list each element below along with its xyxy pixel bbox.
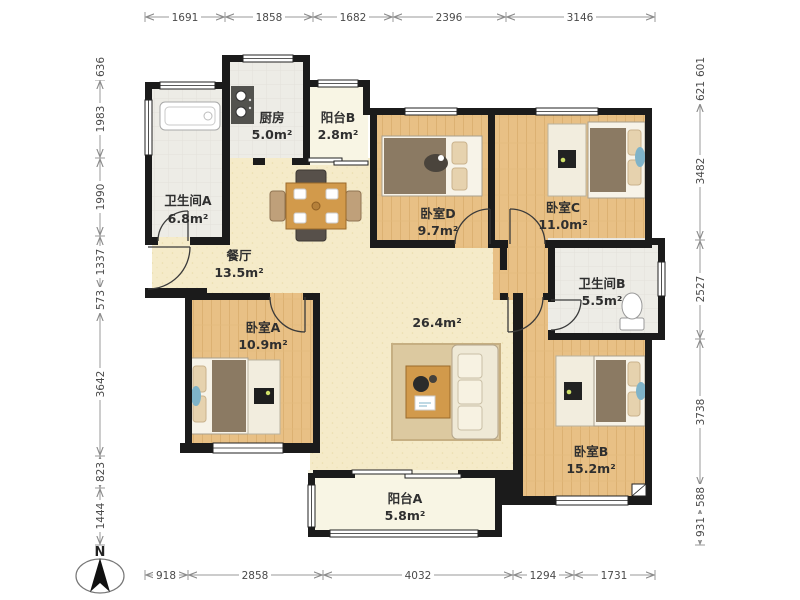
bed-d [382, 136, 482, 196]
living-set [392, 344, 500, 440]
bed-b [556, 356, 646, 426]
dim-left-6: 823 [95, 462, 107, 482]
dim-top-4: 3146 [567, 12, 594, 24]
compass-needle-icon [90, 558, 110, 592]
dim-bottom-1: 2858 [242, 570, 269, 582]
bath-b-area: 5.5m² [582, 293, 623, 308]
bedroom-b-label: 卧室B [574, 444, 609, 459]
balcony-b-area: 2.8m² [318, 127, 359, 142]
bedroom-d-area: 9.7m² [418, 223, 459, 238]
window-bedroom-a-bottom [213, 443, 283, 453]
balcony-a-label: 阳台A [388, 491, 423, 506]
dimensions-bottom: 918 2858 4032 1294 1731 [145, 569, 655, 582]
dim-left-4: 573 [95, 290, 107, 310]
dim-top-0: 1691 [172, 12, 199, 24]
bathtub [160, 102, 220, 130]
bedroom-d-label: 卧室D [420, 206, 455, 221]
floor-plan-page: 厨房 5.0m² 阳台B 2.8m² 卫生间A 6.8m² 餐厅 13.5m² … [0, 0, 800, 600]
dim-right-4: 3738 [695, 399, 707, 426]
dim-bottom-0: 918 [156, 570, 176, 582]
bath-a-area: 6.8m² [168, 211, 209, 226]
window-balcony-a-bottom [330, 530, 478, 537]
living-area: 26.4m² [412, 315, 461, 330]
dim-left-7: 1444 [95, 502, 107, 529]
dining-label: 餐厅 [225, 248, 252, 263]
balcony-a-area: 5.8m² [385, 508, 426, 523]
bedroom-a-area: 10.9m² [238, 337, 287, 352]
bed-c [548, 122, 645, 198]
bedroom-c-area: 11.0m² [538, 217, 587, 232]
dim-left-1: 1983 [95, 106, 107, 133]
dim-left-5: 3642 [95, 371, 107, 398]
window-bedroom-d-top [405, 108, 457, 115]
dim-left-2: 1990 [95, 184, 107, 211]
bedroom-c-label: 卧室C [546, 200, 580, 215]
dim-top-2: 1682 [340, 12, 367, 24]
dim-right-3: 2527 [695, 276, 707, 303]
floor-plan-canvas: 厨房 5.0m² 阳台B 2.8m² 卫生间A 6.8m² 餐厅 13.5m² … [0, 0, 800, 600]
bedroom-b-area: 15.2m² [566, 461, 615, 476]
dim-bottom-2: 4032 [405, 570, 432, 582]
dim-top-3: 2396 [436, 12, 463, 24]
window-bath-a-top [160, 82, 215, 89]
dimensions-right: 601 621 3482 2527 3738 588 931 [694, 54, 707, 545]
bedroom-a-label: 卧室A [246, 320, 281, 335]
dim-right-0: 601 [695, 57, 707, 77]
dim-right-2: 3482 [695, 158, 707, 185]
window-balcony-a-left [308, 485, 315, 527]
dim-bottom-4: 1731 [601, 570, 628, 582]
window-bedroom-c-top [536, 108, 598, 115]
window-bath-a-left [145, 100, 152, 155]
dim-top-1: 1858 [256, 12, 283, 24]
dim-right-1: 621 [695, 81, 707, 101]
balcony-b-floor [306, 85, 368, 165]
dim-bottom-3: 1294 [530, 570, 557, 582]
window-balcony-b-top [318, 80, 358, 87]
dimensions-left: 636 1983 1990 1337 573 3642 823 1444 [94, 54, 107, 545]
dim-left-3: 1337 [95, 249, 107, 276]
bath-b-label: 卫生间B [578, 276, 625, 291]
kitchen-area: 5.0m² [252, 127, 293, 142]
dim-right-6: 931 [695, 517, 707, 537]
dim-left-0: 636 [95, 57, 107, 77]
bed-a [190, 358, 280, 434]
dim-right-5: 588 [695, 487, 707, 507]
stove [231, 86, 254, 124]
bath-a-label: 卫生间A [164, 193, 212, 208]
window-bath-b-right [658, 262, 665, 296]
kitchen-label: 厨房 [259, 110, 284, 125]
dimensions-top: 1691 1858 1682 2396 3146 [145, 11, 655, 24]
dining-area: 13.5m² [214, 265, 263, 280]
balcony-b-label: 阳台B [321, 110, 356, 125]
toilet [620, 293, 644, 330]
window-kitchen-top [243, 55, 293, 62]
compass: N [76, 545, 124, 593]
window-bedroom-b-bottom [556, 496, 628, 505]
window-bedroom-b-corner [632, 484, 646, 496]
compass-north-label: N [95, 545, 106, 560]
